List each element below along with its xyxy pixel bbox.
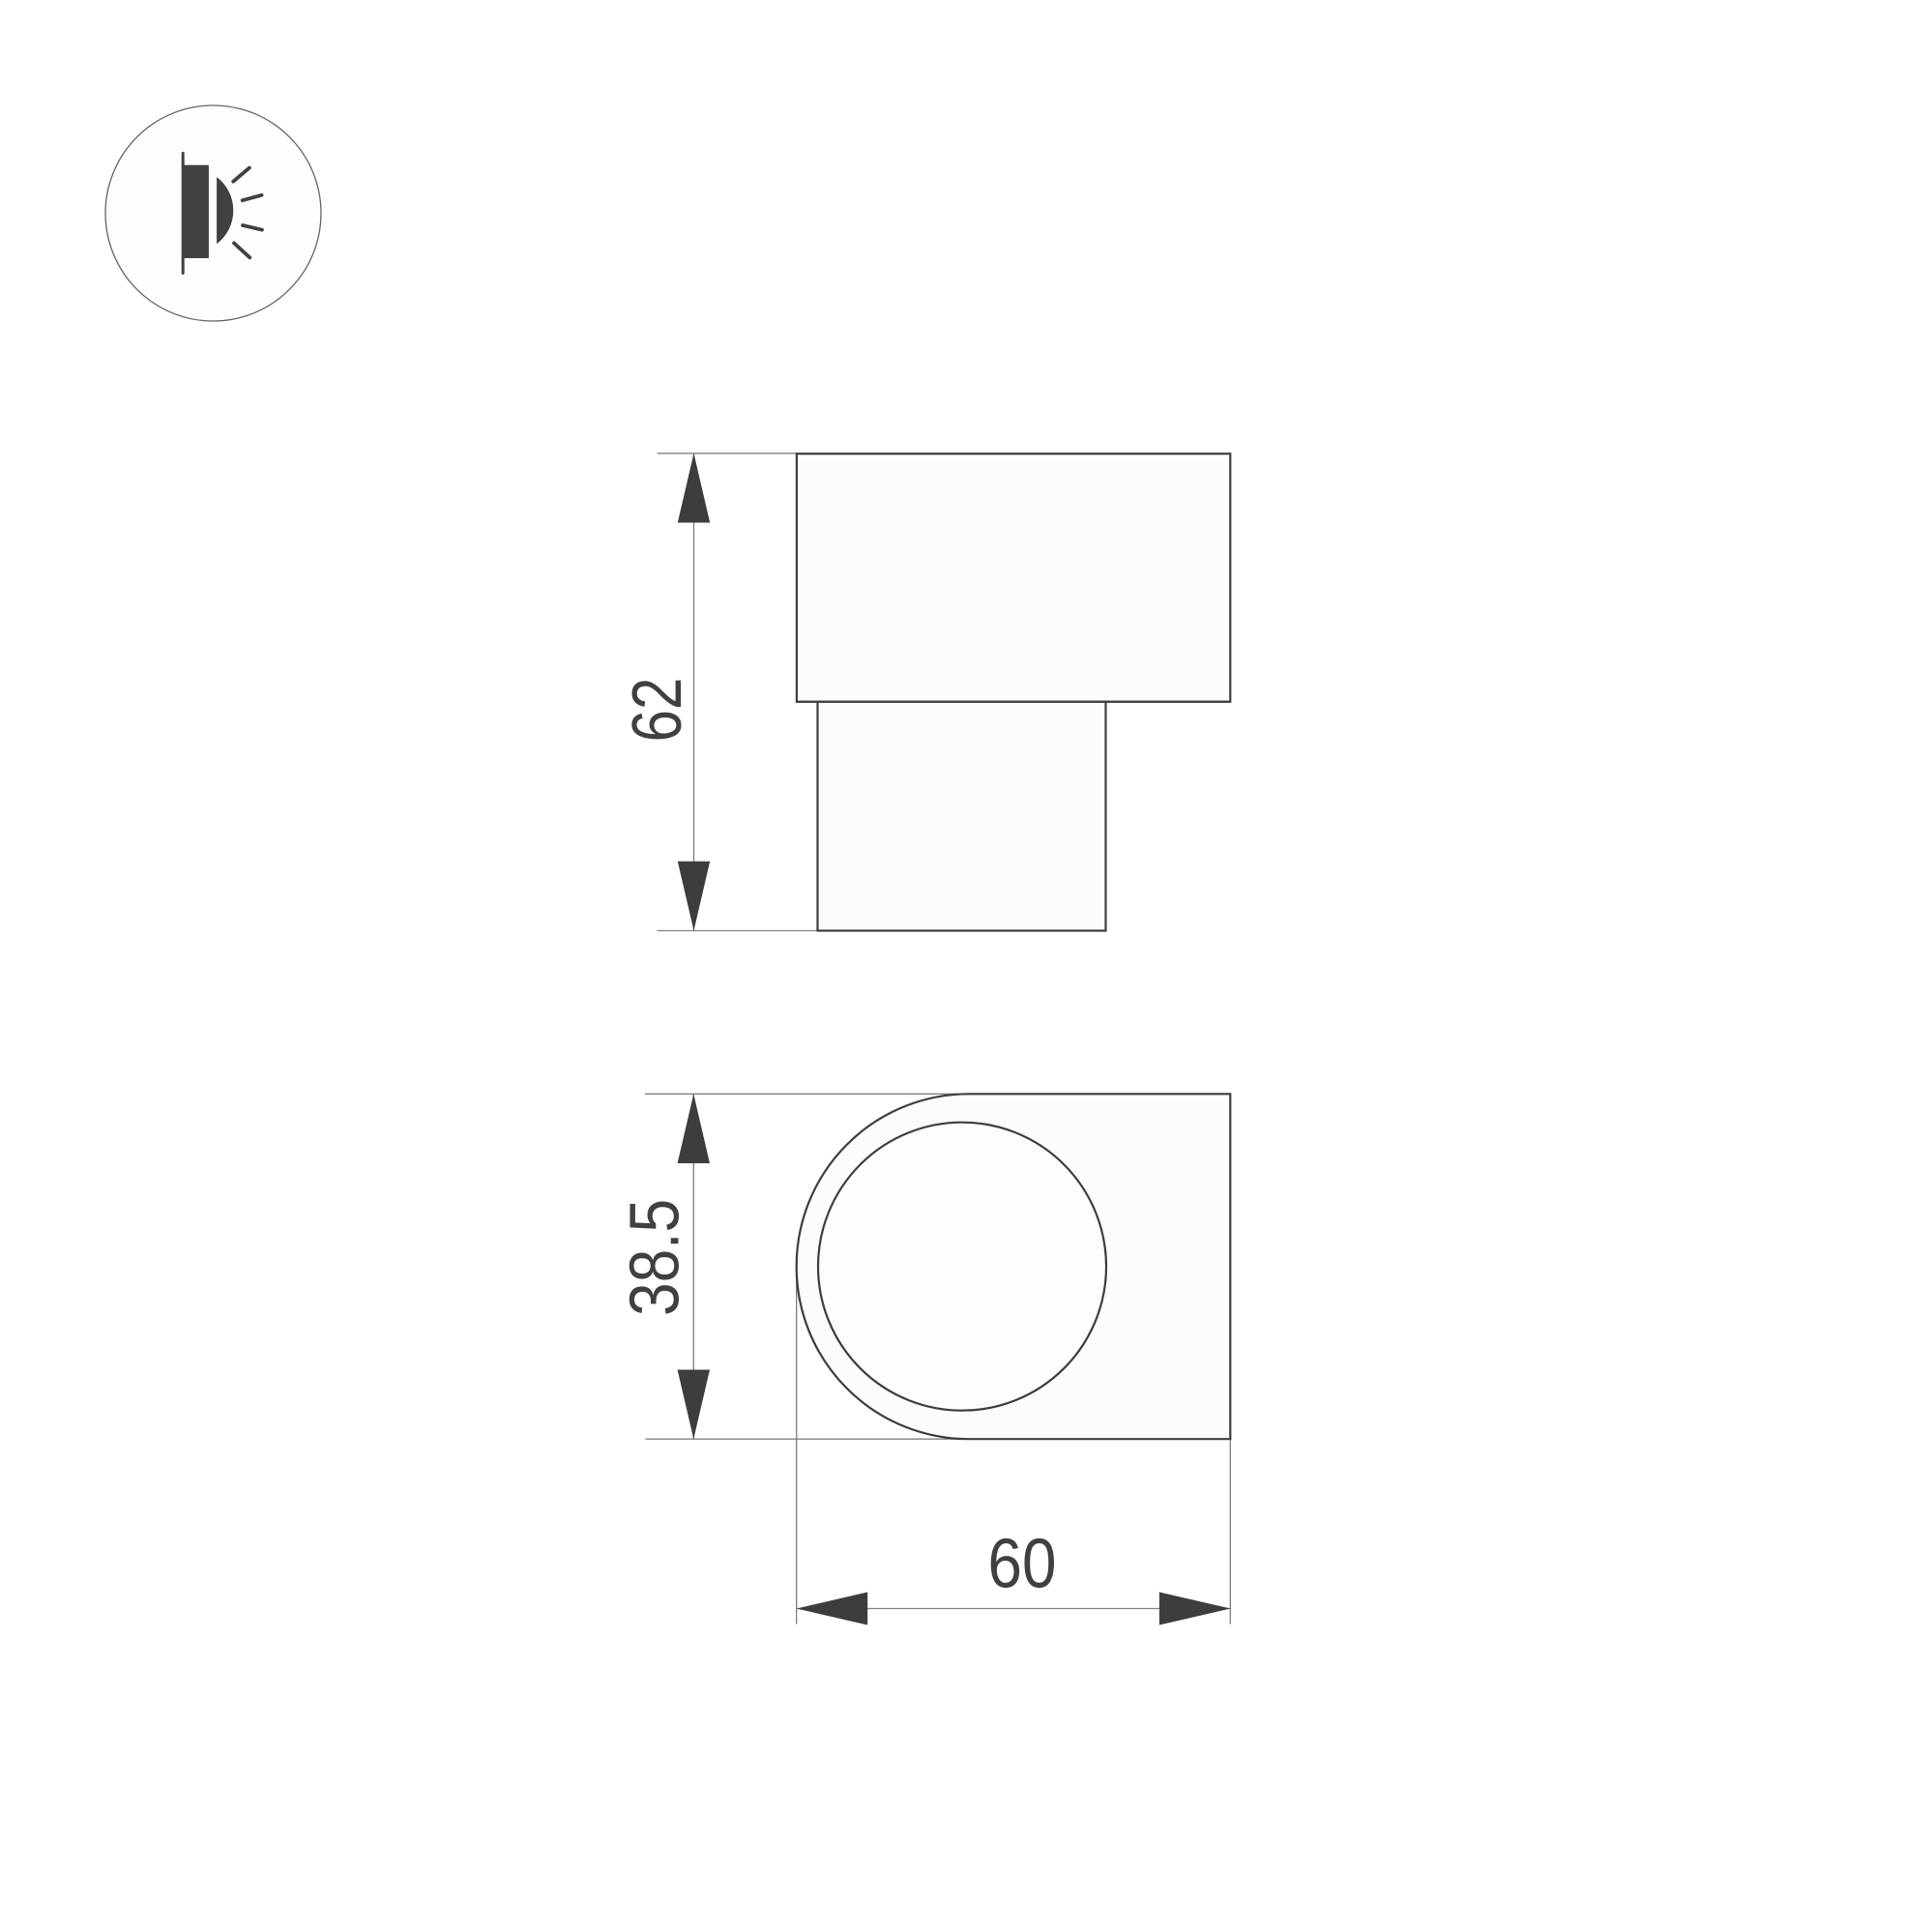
svg-text:38.5: 38.5 (616, 1199, 693, 1316)
svg-text:60: 60 (988, 1525, 1057, 1602)
svg-text:62: 62 (619, 678, 696, 743)
